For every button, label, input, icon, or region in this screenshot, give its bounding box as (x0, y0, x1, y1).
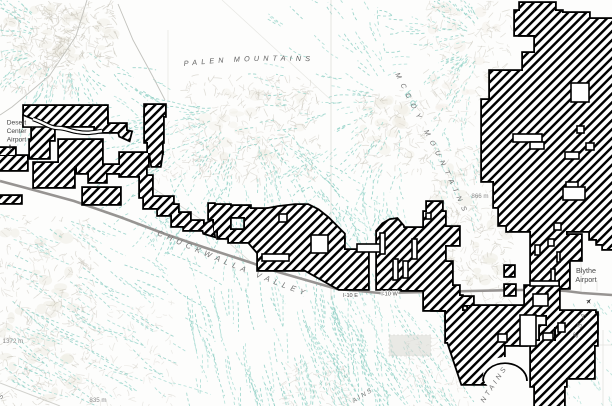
svg-text:866 m: 866 m (471, 193, 488, 200)
svg-text:Desert: Desert (7, 120, 27, 127)
svg-text:835 m: 835 m (89, 397, 106, 404)
svg-text:1372 m: 1372 m (3, 338, 24, 345)
svg-text:Airport: Airport (575, 275, 596, 284)
svg-text:Center: Center (7, 128, 28, 135)
svg-text:Airport: Airport (7, 137, 27, 144)
svg-text:I-10 W: I-10 W (381, 291, 398, 297)
svg-text:Blythe: Blythe (576, 266, 596, 275)
svg-text:I-10 E: I-10 E (343, 293, 358, 299)
